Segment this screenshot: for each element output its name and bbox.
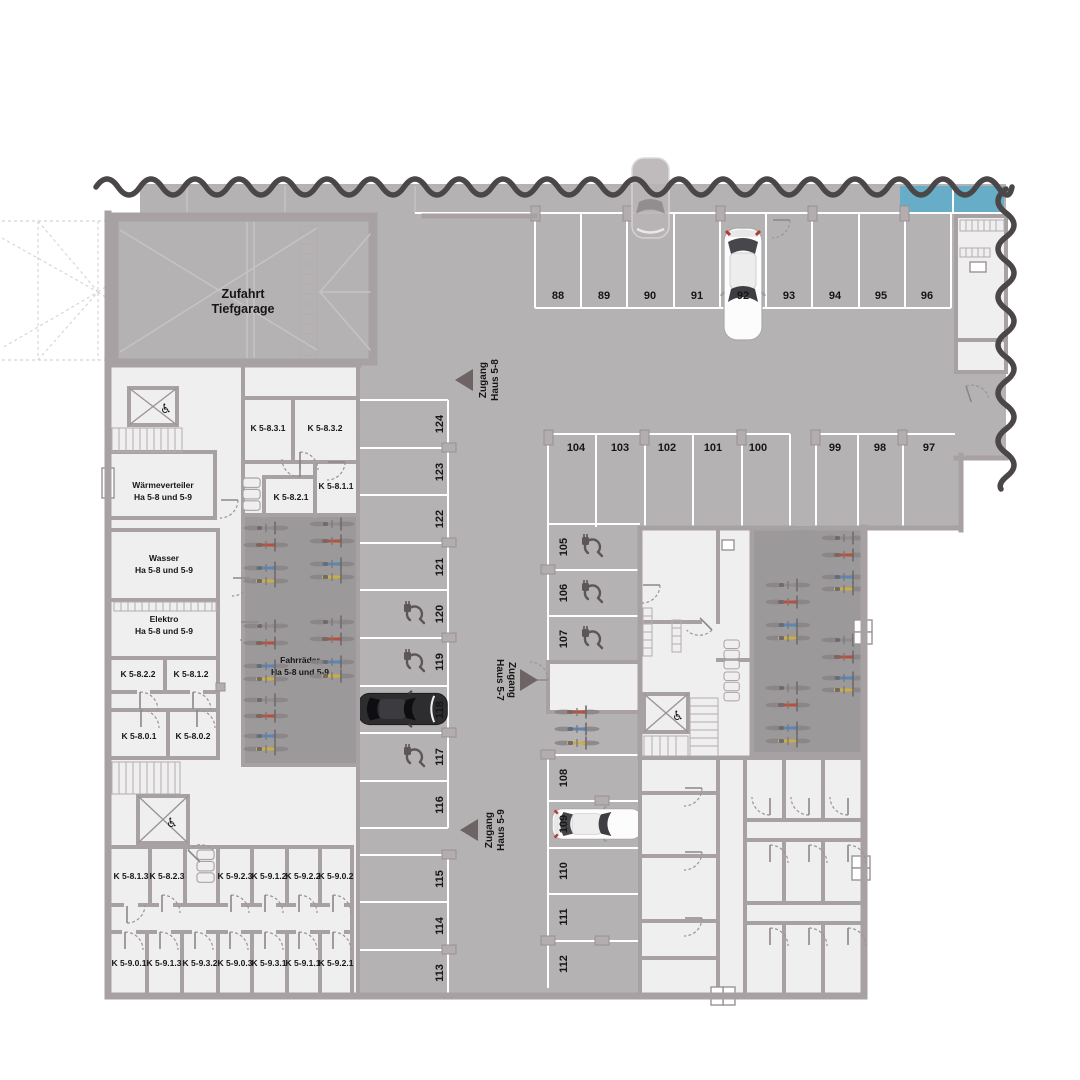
stall-116: 116 [434,796,446,814]
room-k5-913: K 5-9.1.3 [147,958,182,968]
room-k5-922: K 5-9.2.2 [286,871,321,881]
stall-88: 88 [552,290,564,302]
room-wasser: Wasser [149,553,180,563]
stall-110: 110 [558,862,570,880]
svg-text:Ha 5-8 und 5-9: Ha 5-8 und 5-9 [135,626,193,636]
stall-100: 100 [749,442,767,454]
zugang-5-8-line1: Zugang [478,362,489,398]
zugang-5-8-line2: Haus 5-8 [490,359,501,401]
room-k5-911: K 5-9.1.1 [286,958,321,968]
stall-numbers-second: 104 103 102 101 100 99 98 97 [567,442,935,454]
stall-118: 118 [434,701,446,719]
stall-122: 122 [434,510,446,528]
stall-119: 119 [434,653,446,671]
room-k5-932: K 5-9.3.2 [183,958,218,968]
stall-95: 95 [875,290,887,302]
stall-89: 89 [598,290,610,302]
trolley-icon-upper [243,478,260,510]
room-k5-823: K 5-8.2.3 [150,871,185,881]
room-k5-921: K 5-9.2.1 [319,958,354,968]
room-k5-923: K 5-9.2.3 [218,871,253,881]
room-k5-813: K 5-8.1.3 [114,871,149,881]
stall-102: 102 [658,442,676,454]
room-k5-801: K 5-8.0.1 [122,731,157,741]
room-k5-931: K 5-9.3.1 [252,958,287,968]
bike-room-east [752,528,872,754]
zugang-5-7-line1: Zugang [506,662,517,698]
room-k5-901: K 5-9.0.1 [112,958,147,968]
ramp-label-line1: Zufahrt [221,287,265,301]
stall-115: 115 [434,870,446,888]
stall-106: 106 [558,584,570,602]
wheelchair-icon: ♿ [672,709,684,724]
stall-108: 108 [558,769,570,787]
room-k5-831: K 5-8.3.1 [251,423,286,433]
stall-121: 121 [434,558,446,576]
stall-111: 111 [558,908,570,925]
stall-105: 105 [558,538,570,556]
stall-123: 123 [434,463,446,481]
car-icon-spot-92 [721,228,765,340]
room-k5-903: K 5-9.0.3 [218,958,253,968]
trolley-icon-core-2 [724,672,739,701]
stall-109: 109 [558,815,570,833]
zugang-5-9-line1: Zugang [484,812,495,848]
stall-124: 124 [434,414,446,433]
room-k5-821: K 5-8.2.1 [274,492,309,502]
stall-107: 107 [558,630,570,648]
room-k5-811: K 5-8.1.1 [319,481,354,491]
stall-98: 98 [874,442,886,454]
wheelchair-icon: ♿ [166,816,178,831]
stall-117: 117 [434,748,446,766]
stall-120: 120 [434,605,446,623]
stall-101: 101 [704,442,722,454]
room-k5-822: K 5-8.2.2 [121,669,156,679]
room-k5-902: K 5-9.0.2 [319,871,354,881]
tiefgarage-floorplan: Zufahrt Tiefgarage 88 89 90 [0,0,1080,1080]
stall-112: 112 [558,955,570,973]
room-k5-802: K 5-8.0.2 [176,731,211,741]
stall-114: 114 [434,916,446,935]
room-k5-912: K 5-9.1.2 [252,871,287,881]
stall-99: 99 [829,442,841,454]
stall-94: 94 [829,290,842,302]
room-waermeverteiler: Wärmeverteiler [132,480,194,490]
svg-text:Ha 5-8 und 5-9: Ha 5-8 und 5-9 [134,492,192,502]
stall-103: 103 [611,442,629,454]
floorplan-page: Zufahrt Tiefgarage 88 89 90 [0,0,1080,1080]
stall-numbers-top: 88 89 90 91 92 93 94 95 96 [552,290,933,302]
stall-113: 113 [434,964,446,982]
room-k5-832: K 5-8.3.2 [308,423,343,433]
entering-car-icon [632,158,669,238]
zugang-5-7-line2: Haus 5-7 [494,659,505,701]
south-east-room-grid [640,758,870,1005]
trolley-icon-core-1 [724,640,739,669]
stall-104: 104 [567,442,586,454]
room-elektro: Elektro [150,614,179,624]
ramp-label-line2: Tiefgarage [212,302,275,316]
shaft-symbol-core [722,540,734,550]
bike-rack-center-nook [555,706,600,750]
wheelchair-icon: ♿ [160,402,172,417]
trolley-icon-south [197,850,214,882]
drain-symbol [216,683,225,691]
stall-93: 93 [783,290,795,302]
svg-text:Ha 5-8 und 5-9: Ha 5-8 und 5-9 [135,565,193,575]
stall-97: 97 [923,442,935,454]
room-k5-812: K 5-8.1.2 [174,669,209,679]
zugang-5-9-line2: Haus 5-9 [496,809,507,851]
stall-90: 90 [644,290,656,302]
stall-96: 96 [921,290,933,302]
stall-92: 92 [737,290,749,302]
stall-91: 91 [691,290,703,302]
